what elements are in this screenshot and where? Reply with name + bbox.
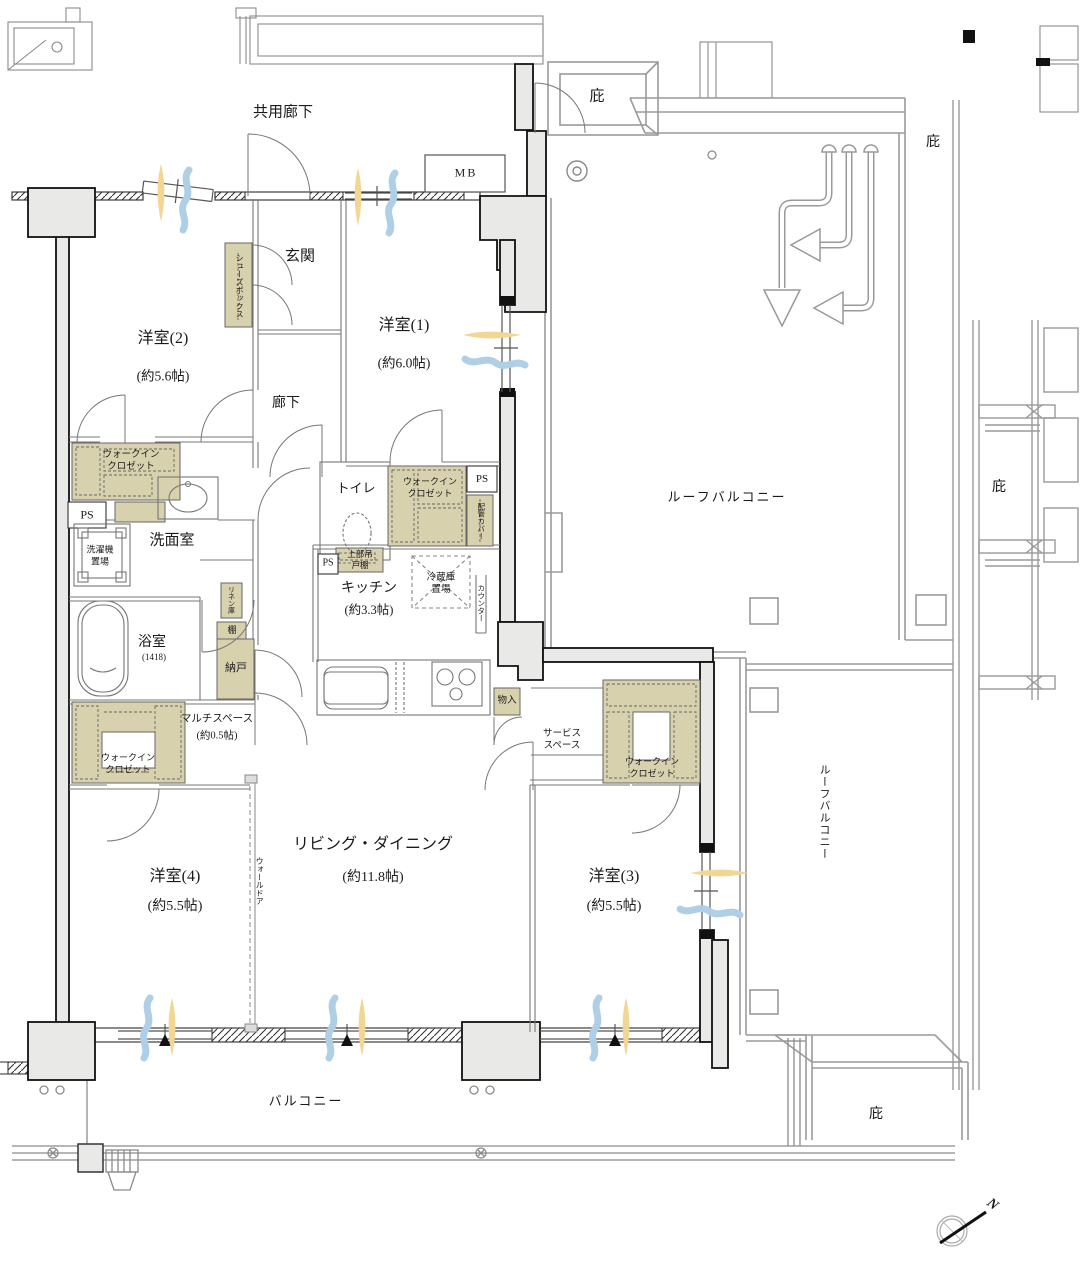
label-toilet: トイレ xyxy=(336,481,375,498)
label-western2-size: (約5.6帖) xyxy=(137,367,190,384)
label-fridge-space: 冷蔵庫置場 xyxy=(427,572,456,596)
label-kitchen-name: キッチン xyxy=(341,580,397,598)
label-wic-3: ウォークインクロゼット xyxy=(101,752,155,775)
label-ps-3: PS xyxy=(322,558,333,571)
label-roof-balcony-upper: ルーフバルコニー xyxy=(668,490,787,507)
label-roof-balcony-lower: ルーフバルコニー xyxy=(817,764,831,860)
label-kitchen-size: (約3.3帖) xyxy=(345,602,394,618)
neighbor-accents xyxy=(963,30,1050,66)
label-western3-name: 洋室(3) xyxy=(589,867,640,887)
label-shelf: 棚 xyxy=(227,625,236,637)
label-living-dining-name: リビング・ダイニング xyxy=(293,835,453,855)
label-western1-name: 洋室(1) xyxy=(379,316,430,336)
label-ps-1: PS xyxy=(80,507,93,522)
window-west1-east xyxy=(494,305,518,392)
roof-balcony-outline xyxy=(545,62,968,1140)
drain-pipes xyxy=(567,145,878,326)
label-wall-door: ウォールドア xyxy=(254,857,264,905)
label-western3-size: (約5.5帖) xyxy=(587,898,642,916)
label-multi-space: マルチスペース xyxy=(181,712,253,725)
floor-plan: 共用廊下 庇 庇 庇 庇 MB 玄関 シューズボックス 洋室(2) (約5.6帖… xyxy=(0,0,1080,1264)
label-hallway: 廊下 xyxy=(272,395,300,413)
label-eaves-right: 庇 xyxy=(992,479,1006,497)
label-wic-4: ウォークインクロゼット xyxy=(625,756,679,779)
label-living-dining-size: (約11.8帖) xyxy=(342,869,403,887)
right-eaves-structure xyxy=(953,100,1078,1090)
label-pipe-cover: 配管カバー xyxy=(476,502,486,540)
label-multi-space-size: (約0.5帖) xyxy=(196,729,237,742)
window-west3-east xyxy=(694,852,718,930)
label-upper-cabinet: 上部吊戸棚 xyxy=(347,549,373,571)
label-closet-small: 物入 xyxy=(497,695,516,707)
label-eaves-topright: 庇 xyxy=(926,134,940,152)
label-shoe-box: シューズボックス xyxy=(234,254,244,318)
window-west2-top xyxy=(142,175,214,207)
label-eaves-bottom: 庇 xyxy=(869,1106,883,1124)
neighbor-structures xyxy=(8,8,1078,112)
label-linen: リネン庫 xyxy=(227,586,236,614)
label-wic-1: ウォークインクロゼット xyxy=(103,449,160,473)
label-western4-name: 洋室(4) xyxy=(150,867,201,887)
label-entrance: 玄関 xyxy=(285,247,315,266)
kitchen-counter xyxy=(317,660,490,715)
label-washroom: 洗面室 xyxy=(149,531,194,550)
label-bathroom-size: (1418) xyxy=(142,652,166,664)
label-western4-size: (約5.5帖) xyxy=(148,898,203,916)
compass-icon xyxy=(937,1212,986,1246)
label-western2-name: 洋室(2) xyxy=(138,329,189,349)
label-ps-2: PS xyxy=(476,472,488,486)
label-balcony: バルコニー xyxy=(269,1094,344,1111)
label-bathroom: 浴室 xyxy=(138,634,166,652)
floor-plan-drawing xyxy=(0,0,1080,1264)
label-wic-2: ウォークインクロゼット xyxy=(403,476,457,499)
label-service-space: サービススペース xyxy=(543,728,581,752)
label-eaves-top: 庇 xyxy=(589,87,604,106)
bathtub xyxy=(78,601,128,696)
label-washer-space: 洗濯機置場 xyxy=(87,544,114,567)
label-meter-box: MB xyxy=(455,165,478,180)
label-western1-size: (約6.0帖) xyxy=(378,354,431,371)
label-storeroom: 納戸 xyxy=(225,661,247,675)
label-counter: カウンター xyxy=(476,584,486,622)
balcony-end-post xyxy=(78,1144,103,1172)
label-common-corridor: 共用廊下 xyxy=(253,103,313,122)
